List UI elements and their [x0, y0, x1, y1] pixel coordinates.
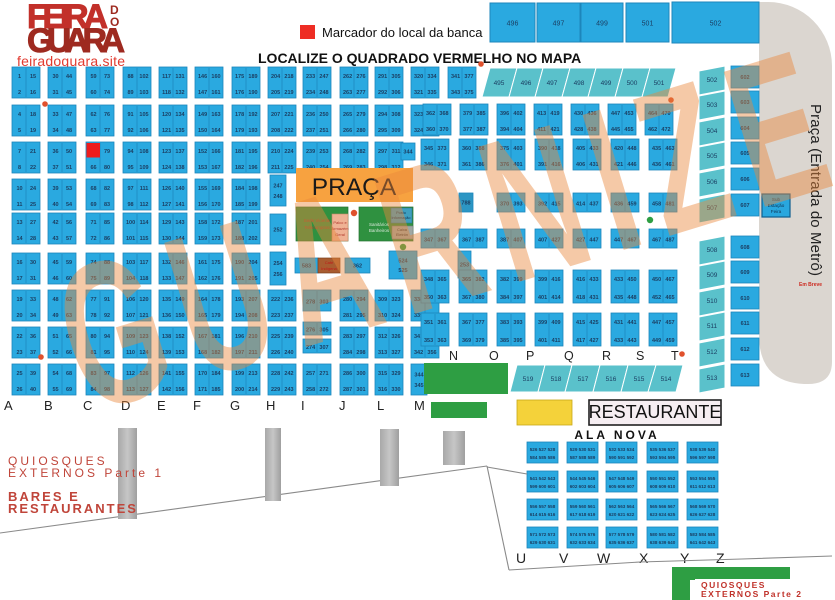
- svg-text:80: 80: [104, 165, 110, 171]
- svg-text:62: 62: [90, 112, 96, 118]
- svg-text:X: X: [639, 550, 649, 566]
- svg-text:330: 330: [391, 387, 400, 393]
- svg-text:37: 37: [30, 350, 36, 356]
- svg-text:31: 31: [52, 90, 58, 96]
- svg-text:134: 134: [175, 112, 185, 118]
- svg-text:2: 2: [18, 90, 21, 96]
- svg-text:126: 126: [162, 186, 171, 192]
- svg-text:111: 111: [140, 186, 149, 192]
- svg-text:574 575 576: 574 575 576: [570, 532, 596, 537]
- svg-text:266: 266: [343, 128, 352, 134]
- svg-text:620 621 622: 620 621 622: [609, 512, 635, 517]
- svg-text:218: 218: [284, 74, 293, 80]
- svg-text:178: 178: [235, 112, 244, 118]
- svg-text:A: A: [4, 398, 13, 413]
- svg-text:5: 5: [18, 128, 21, 134]
- svg-text:105: 105: [139, 112, 148, 118]
- svg-text:541 542 543: 541 542 543: [530, 476, 556, 481]
- svg-text:236: 236: [306, 112, 315, 118]
- svg-text:301: 301: [356, 387, 365, 393]
- svg-text:25: 25: [30, 202, 36, 208]
- svg-text:276: 276: [356, 74, 365, 80]
- svg-text:10: 10: [16, 186, 22, 192]
- svg-text:149: 149: [198, 112, 207, 118]
- svg-text:385: 385: [500, 338, 509, 344]
- svg-text:69: 69: [90, 202, 96, 208]
- svg-text:33: 33: [30, 297, 36, 303]
- svg-text:292: 292: [378, 90, 387, 96]
- svg-text:641 642 643: 641 642 643: [690, 540, 716, 545]
- svg-text:167: 167: [211, 165, 220, 171]
- svg-text:517: 517: [578, 376, 589, 383]
- svg-text:583 584 585: 583 584 585: [690, 532, 716, 537]
- svg-text:626 627 628: 626 627 628: [690, 512, 716, 517]
- svg-text:590 591 592: 590 591 592: [609, 455, 635, 460]
- svg-text:535 536 537: 535 536 537: [650, 447, 676, 452]
- svg-text:74: 74: [104, 90, 111, 96]
- svg-text:92: 92: [127, 128, 133, 134]
- svg-text:568 569 570: 568 569 570: [690, 504, 716, 509]
- svg-text:251: 251: [319, 128, 328, 134]
- svg-text:632 633 634: 632 633 634: [570, 540, 596, 545]
- svg-text:16: 16: [30, 90, 36, 96]
- svg-text:334: 334: [427, 74, 437, 80]
- svg-text:465: 465: [665, 295, 674, 301]
- svg-text:329: 329: [391, 371, 400, 377]
- svg-text:320: 320: [414, 74, 423, 80]
- svg-text:459: 459: [665, 338, 674, 344]
- svg-text:20: 20: [16, 313, 22, 319]
- svg-text:164: 164: [211, 128, 221, 134]
- svg-text:132: 132: [175, 90, 184, 96]
- svg-text:176: 176: [235, 90, 244, 96]
- svg-text:R: R: [602, 349, 611, 363]
- svg-text:53: 53: [66, 186, 72, 192]
- svg-text:108: 108: [139, 149, 148, 155]
- svg-text:Marcador do local da banca: Marcador do local da banca: [322, 25, 483, 40]
- svg-text:39: 39: [52, 186, 58, 192]
- svg-text:40: 40: [30, 387, 36, 393]
- svg-text:433: 433: [614, 338, 623, 344]
- svg-text:611 612 613: 611 612 613: [690, 484, 716, 489]
- svg-text:345: 345: [414, 383, 423, 389]
- svg-text:279: 279: [356, 112, 365, 118]
- svg-text:237: 237: [306, 128, 315, 134]
- svg-text:51: 51: [66, 165, 72, 171]
- svg-text:190: 190: [248, 90, 257, 96]
- svg-text:76: 76: [104, 112, 110, 118]
- svg-text:580 581 582: 580 581 582: [650, 532, 676, 537]
- svg-text:265: 265: [343, 112, 352, 118]
- svg-text:605 606 607: 605 606 607: [609, 484, 635, 489]
- svg-text:599 600 601: 599 600 601: [530, 484, 556, 489]
- svg-text:123: 123: [162, 149, 171, 155]
- svg-text:23: 23: [16, 350, 22, 356]
- svg-text:638 639 640: 638 639 640: [650, 540, 676, 545]
- svg-text:117: 117: [162, 74, 171, 80]
- svg-text:131: 131: [175, 74, 184, 80]
- svg-text:J: J: [339, 398, 346, 413]
- svg-text:M: M: [414, 398, 425, 413]
- svg-text:44: 44: [66, 74, 73, 80]
- svg-text:509: 509: [707, 272, 718, 279]
- svg-text:161: 161: [211, 90, 220, 96]
- svg-text:15: 15: [30, 74, 36, 80]
- svg-text:EXTERNOS Parte 1: EXTERNOS Parte 1: [8, 466, 164, 480]
- svg-text:519: 519: [523, 376, 534, 383]
- svg-text:137: 137: [175, 149, 184, 155]
- svg-text:16: 16: [16, 260, 22, 266]
- svg-text:547 548 549: 547 548 549: [609, 476, 635, 481]
- svg-text:1: 1: [18, 74, 21, 80]
- svg-text:82: 82: [104, 186, 110, 192]
- svg-text:316: 316: [378, 387, 387, 393]
- svg-text:415: 415: [576, 320, 585, 326]
- svg-text:550 551 552: 550 551 552: [650, 476, 676, 481]
- svg-text:T: T: [671, 349, 679, 363]
- svg-text:263: 263: [343, 90, 352, 96]
- svg-text:51: 51: [52, 334, 58, 340]
- svg-text:609: 609: [740, 270, 749, 276]
- svg-text:233: 233: [306, 74, 315, 80]
- svg-text:135: 135: [175, 128, 184, 134]
- svg-text:P: P: [526, 349, 534, 363]
- svg-text:247: 247: [319, 74, 328, 80]
- svg-text:18: 18: [30, 112, 36, 118]
- svg-text:120: 120: [162, 112, 171, 118]
- svg-text:91: 91: [127, 112, 133, 118]
- svg-text:193: 193: [248, 128, 257, 134]
- svg-text:175: 175: [235, 74, 244, 80]
- svg-text:234: 234: [306, 90, 316, 96]
- svg-text:635 636 637: 635 636 637: [609, 540, 635, 545]
- svg-text:277: 277: [356, 90, 365, 96]
- svg-text:152: 152: [198, 149, 207, 155]
- svg-text:138: 138: [175, 165, 184, 171]
- svg-text:447: 447: [652, 320, 661, 326]
- svg-text:617 618 619: 617 618 619: [570, 512, 596, 517]
- svg-text:48: 48: [66, 128, 72, 134]
- svg-text:39: 39: [30, 371, 36, 377]
- svg-text:195: 195: [248, 149, 257, 155]
- svg-text:7: 7: [18, 149, 21, 155]
- svg-text:602 603 604: 602 603 604: [570, 484, 596, 489]
- svg-text:50: 50: [66, 149, 72, 155]
- svg-text:516: 516: [606, 376, 617, 383]
- svg-text:97: 97: [127, 186, 133, 192]
- svg-text:287: 287: [343, 387, 352, 393]
- svg-text:308: 308: [391, 112, 400, 118]
- svg-text:441: 441: [627, 320, 636, 326]
- svg-text:208: 208: [271, 128, 280, 134]
- svg-text:47: 47: [66, 112, 72, 118]
- svg-text:109: 109: [139, 165, 148, 171]
- svg-text:19: 19: [30, 128, 36, 134]
- svg-text:499: 499: [596, 21, 608, 28]
- svg-text:27: 27: [30, 220, 36, 226]
- svg-text:532 533 534: 532 533 534: [609, 447, 635, 452]
- svg-text:565 566 567: 565 566 567: [650, 504, 676, 509]
- svg-text:377: 377: [464, 74, 473, 80]
- svg-text:584 585 586: 584 585 586: [530, 455, 556, 460]
- svg-text:146: 146: [198, 74, 207, 80]
- svg-text:526 527 528: 526 527 528: [530, 447, 556, 452]
- svg-text:401: 401: [538, 338, 547, 344]
- svg-text:21: 21: [30, 149, 36, 155]
- svg-text:EXTERNOS Parte 2: EXTERNOS Parte 2: [701, 589, 802, 599]
- svg-text:36: 36: [52, 149, 58, 155]
- svg-text:497: 497: [553, 21, 565, 28]
- svg-text:45: 45: [66, 90, 72, 96]
- svg-text:411: 411: [552, 338, 561, 344]
- svg-text:219: 219: [284, 90, 293, 96]
- svg-text:63: 63: [90, 128, 96, 134]
- svg-text:395: 395: [513, 338, 522, 344]
- svg-text:323: 323: [414, 112, 423, 118]
- svg-text:31: 31: [30, 276, 36, 282]
- svg-text:Em Breve: Em Breve: [799, 282, 822, 288]
- svg-text:68: 68: [66, 371, 72, 377]
- svg-text:593 594 595: 593 594 595: [650, 455, 676, 460]
- svg-text:341: 341: [451, 74, 460, 80]
- svg-text:56: 56: [66, 220, 72, 226]
- svg-text:U: U: [516, 550, 526, 566]
- svg-text:510: 510: [707, 298, 718, 305]
- svg-text:24: 24: [30, 186, 37, 192]
- svg-text:189: 189: [248, 74, 257, 80]
- svg-text:224: 224: [284, 149, 294, 155]
- svg-text:68: 68: [90, 186, 96, 192]
- svg-text:147: 147: [198, 90, 207, 96]
- svg-text:501: 501: [642, 21, 654, 28]
- svg-text:77: 77: [104, 128, 110, 134]
- svg-text:221: 221: [284, 112, 293, 118]
- svg-text:66: 66: [90, 165, 96, 171]
- svg-text:182: 182: [235, 165, 244, 171]
- svg-text:443: 443: [627, 338, 636, 344]
- svg-text:O: O: [489, 349, 499, 363]
- svg-text:30: 30: [30, 260, 36, 266]
- svg-text:294: 294: [378, 112, 388, 118]
- svg-text:L: L: [377, 398, 384, 413]
- svg-text:577 578 579: 577 578 579: [609, 532, 635, 537]
- svg-text:518: 518: [551, 376, 562, 383]
- svg-text:529 530 531: 529 530 531: [570, 447, 596, 452]
- svg-text:166: 166: [211, 149, 220, 155]
- svg-text:13: 13: [16, 220, 22, 226]
- svg-text:612: 612: [740, 347, 749, 353]
- svg-text:17: 17: [16, 276, 22, 282]
- svg-text:431: 431: [614, 320, 623, 326]
- svg-text:feiradoguara.site: feiradoguara.site: [17, 53, 125, 69]
- svg-text:427: 427: [589, 338, 598, 344]
- svg-text:515: 515: [634, 376, 645, 383]
- svg-text:42: 42: [52, 220, 58, 226]
- svg-text:511: 511: [707, 323, 718, 330]
- svg-text:556 557 558: 556 557 558: [530, 504, 556, 509]
- svg-text:250: 250: [319, 112, 328, 118]
- svg-text:26: 26: [16, 387, 22, 393]
- svg-text:Y: Y: [680, 550, 690, 566]
- svg-text:181: 181: [235, 149, 244, 155]
- svg-text:596 597 598: 596 597 598: [690, 455, 716, 460]
- svg-text:150: 150: [198, 128, 207, 134]
- svg-text:33: 33: [52, 112, 58, 118]
- svg-text:40: 40: [52, 202, 58, 208]
- svg-text:571 572 573: 571 572 573: [530, 532, 556, 537]
- svg-text:160: 160: [211, 74, 220, 80]
- svg-text:315: 315: [378, 371, 387, 377]
- svg-text:Z: Z: [716, 550, 725, 566]
- svg-text:S: S: [636, 349, 644, 363]
- svg-text:LOCALIZE O QUADRADO VERMELHO N: LOCALIZE O QUADRADO VERMELHO NO MAPA: [258, 50, 581, 66]
- svg-text:94: 94: [127, 149, 134, 155]
- svg-text:512: 512: [707, 349, 718, 356]
- svg-text:79: 79: [104, 149, 110, 155]
- svg-text:69: 69: [66, 387, 72, 393]
- svg-text:22: 22: [30, 165, 36, 171]
- svg-text:344: 344: [414, 373, 424, 379]
- svg-text:RESTAURANTE: RESTAURANTE: [589, 402, 722, 422]
- svg-text:452: 452: [652, 295, 661, 301]
- svg-text:163: 163: [211, 112, 220, 118]
- svg-text:375: 375: [464, 90, 473, 96]
- svg-text:409: 409: [551, 320, 560, 326]
- svg-text:587 588 589: 587 588 589: [570, 455, 596, 460]
- svg-text:306: 306: [391, 90, 400, 96]
- svg-text:614 615 616: 614 615 616: [530, 512, 556, 517]
- svg-text:192: 192: [248, 112, 257, 118]
- svg-text:613: 613: [740, 373, 749, 379]
- svg-text:553 554 555: 553 554 555: [690, 476, 716, 481]
- svg-text:262: 262: [343, 74, 352, 80]
- svg-text:106: 106: [139, 128, 148, 134]
- svg-text:514: 514: [661, 376, 672, 383]
- svg-text:54: 54: [52, 371, 59, 377]
- svg-text:457: 457: [665, 320, 674, 326]
- svg-text:I: I: [301, 398, 305, 413]
- svg-text:N: N: [449, 349, 458, 363]
- svg-text:52: 52: [52, 350, 58, 356]
- svg-text:124: 124: [162, 165, 172, 171]
- svg-text:102: 102: [139, 74, 148, 80]
- svg-text:425: 425: [589, 320, 598, 326]
- svg-text:210: 210: [271, 149, 280, 155]
- svg-text:608 609 610: 608 609 610: [650, 484, 676, 489]
- svg-text:RESTAURANTES: RESTAURANTES: [8, 501, 138, 516]
- svg-text:22: 22: [16, 334, 22, 340]
- svg-text:321: 321: [414, 90, 423, 96]
- svg-text:Q: Q: [564, 349, 574, 363]
- svg-text:179: 179: [235, 128, 244, 134]
- svg-text:121: 121: [162, 128, 171, 134]
- svg-text:14: 14: [16, 236, 23, 242]
- svg-text:623 624 625: 623 624 625: [650, 512, 676, 517]
- svg-text:305: 305: [391, 74, 400, 80]
- svg-text:V: V: [559, 550, 569, 566]
- svg-text:83: 83: [104, 202, 110, 208]
- svg-text:449: 449: [652, 338, 661, 344]
- svg-text:8: 8: [18, 165, 21, 171]
- svg-text:103: 103: [139, 90, 148, 96]
- svg-text:ALA NOVA: ALA NOVA: [574, 428, 659, 442]
- svg-text:19: 19: [16, 297, 22, 303]
- svg-text:118: 118: [162, 90, 171, 96]
- svg-text:73: 73: [104, 74, 110, 80]
- svg-text:11: 11: [17, 202, 23, 208]
- svg-text:89: 89: [127, 90, 133, 96]
- svg-text:54: 54: [66, 202, 73, 208]
- svg-text:37: 37: [52, 165, 58, 171]
- svg-text:335: 335: [427, 90, 436, 96]
- svg-text:95: 95: [127, 165, 133, 171]
- svg-text:502: 502: [710, 21, 722, 28]
- svg-text:544 545 546: 544 545 546: [570, 476, 596, 481]
- svg-text:34: 34: [30, 313, 37, 319]
- svg-text:30: 30: [52, 74, 58, 80]
- svg-text:291: 291: [378, 74, 387, 80]
- svg-text:610: 610: [740, 296, 749, 302]
- svg-text:153: 153: [198, 165, 207, 171]
- svg-text:496: 496: [507, 21, 519, 28]
- svg-text:629 630 631: 629 630 631: [530, 540, 556, 545]
- svg-text:562 563 564: 562 563 564: [609, 504, 635, 509]
- svg-text:207: 207: [271, 112, 280, 118]
- svg-text:204: 204: [271, 74, 281, 80]
- svg-text:559 560 561: 559 560 561: [570, 504, 596, 509]
- svg-text:343: 343: [451, 90, 460, 96]
- svg-text:513: 513: [707, 375, 718, 382]
- svg-text:222: 222: [284, 128, 293, 134]
- svg-text:417: 417: [576, 338, 585, 344]
- svg-text:25: 25: [16, 371, 22, 377]
- svg-text:538 539 540: 538 539 540: [690, 447, 716, 452]
- svg-text:448: 448: [627, 295, 636, 301]
- svg-text:611: 611: [741, 321, 750, 327]
- svg-text:280: 280: [356, 128, 365, 134]
- svg-text:59: 59: [90, 74, 96, 80]
- svg-text:36: 36: [30, 334, 36, 340]
- svg-text:140: 140: [175, 186, 184, 192]
- svg-text:55: 55: [52, 387, 58, 393]
- svg-text:205: 205: [271, 90, 280, 96]
- svg-text:B: B: [44, 398, 53, 413]
- svg-text:248: 248: [319, 90, 328, 96]
- svg-text:495: 495: [494, 80, 505, 87]
- svg-text:34: 34: [52, 128, 59, 134]
- svg-text:88: 88: [127, 74, 133, 80]
- svg-text:60: 60: [90, 90, 96, 96]
